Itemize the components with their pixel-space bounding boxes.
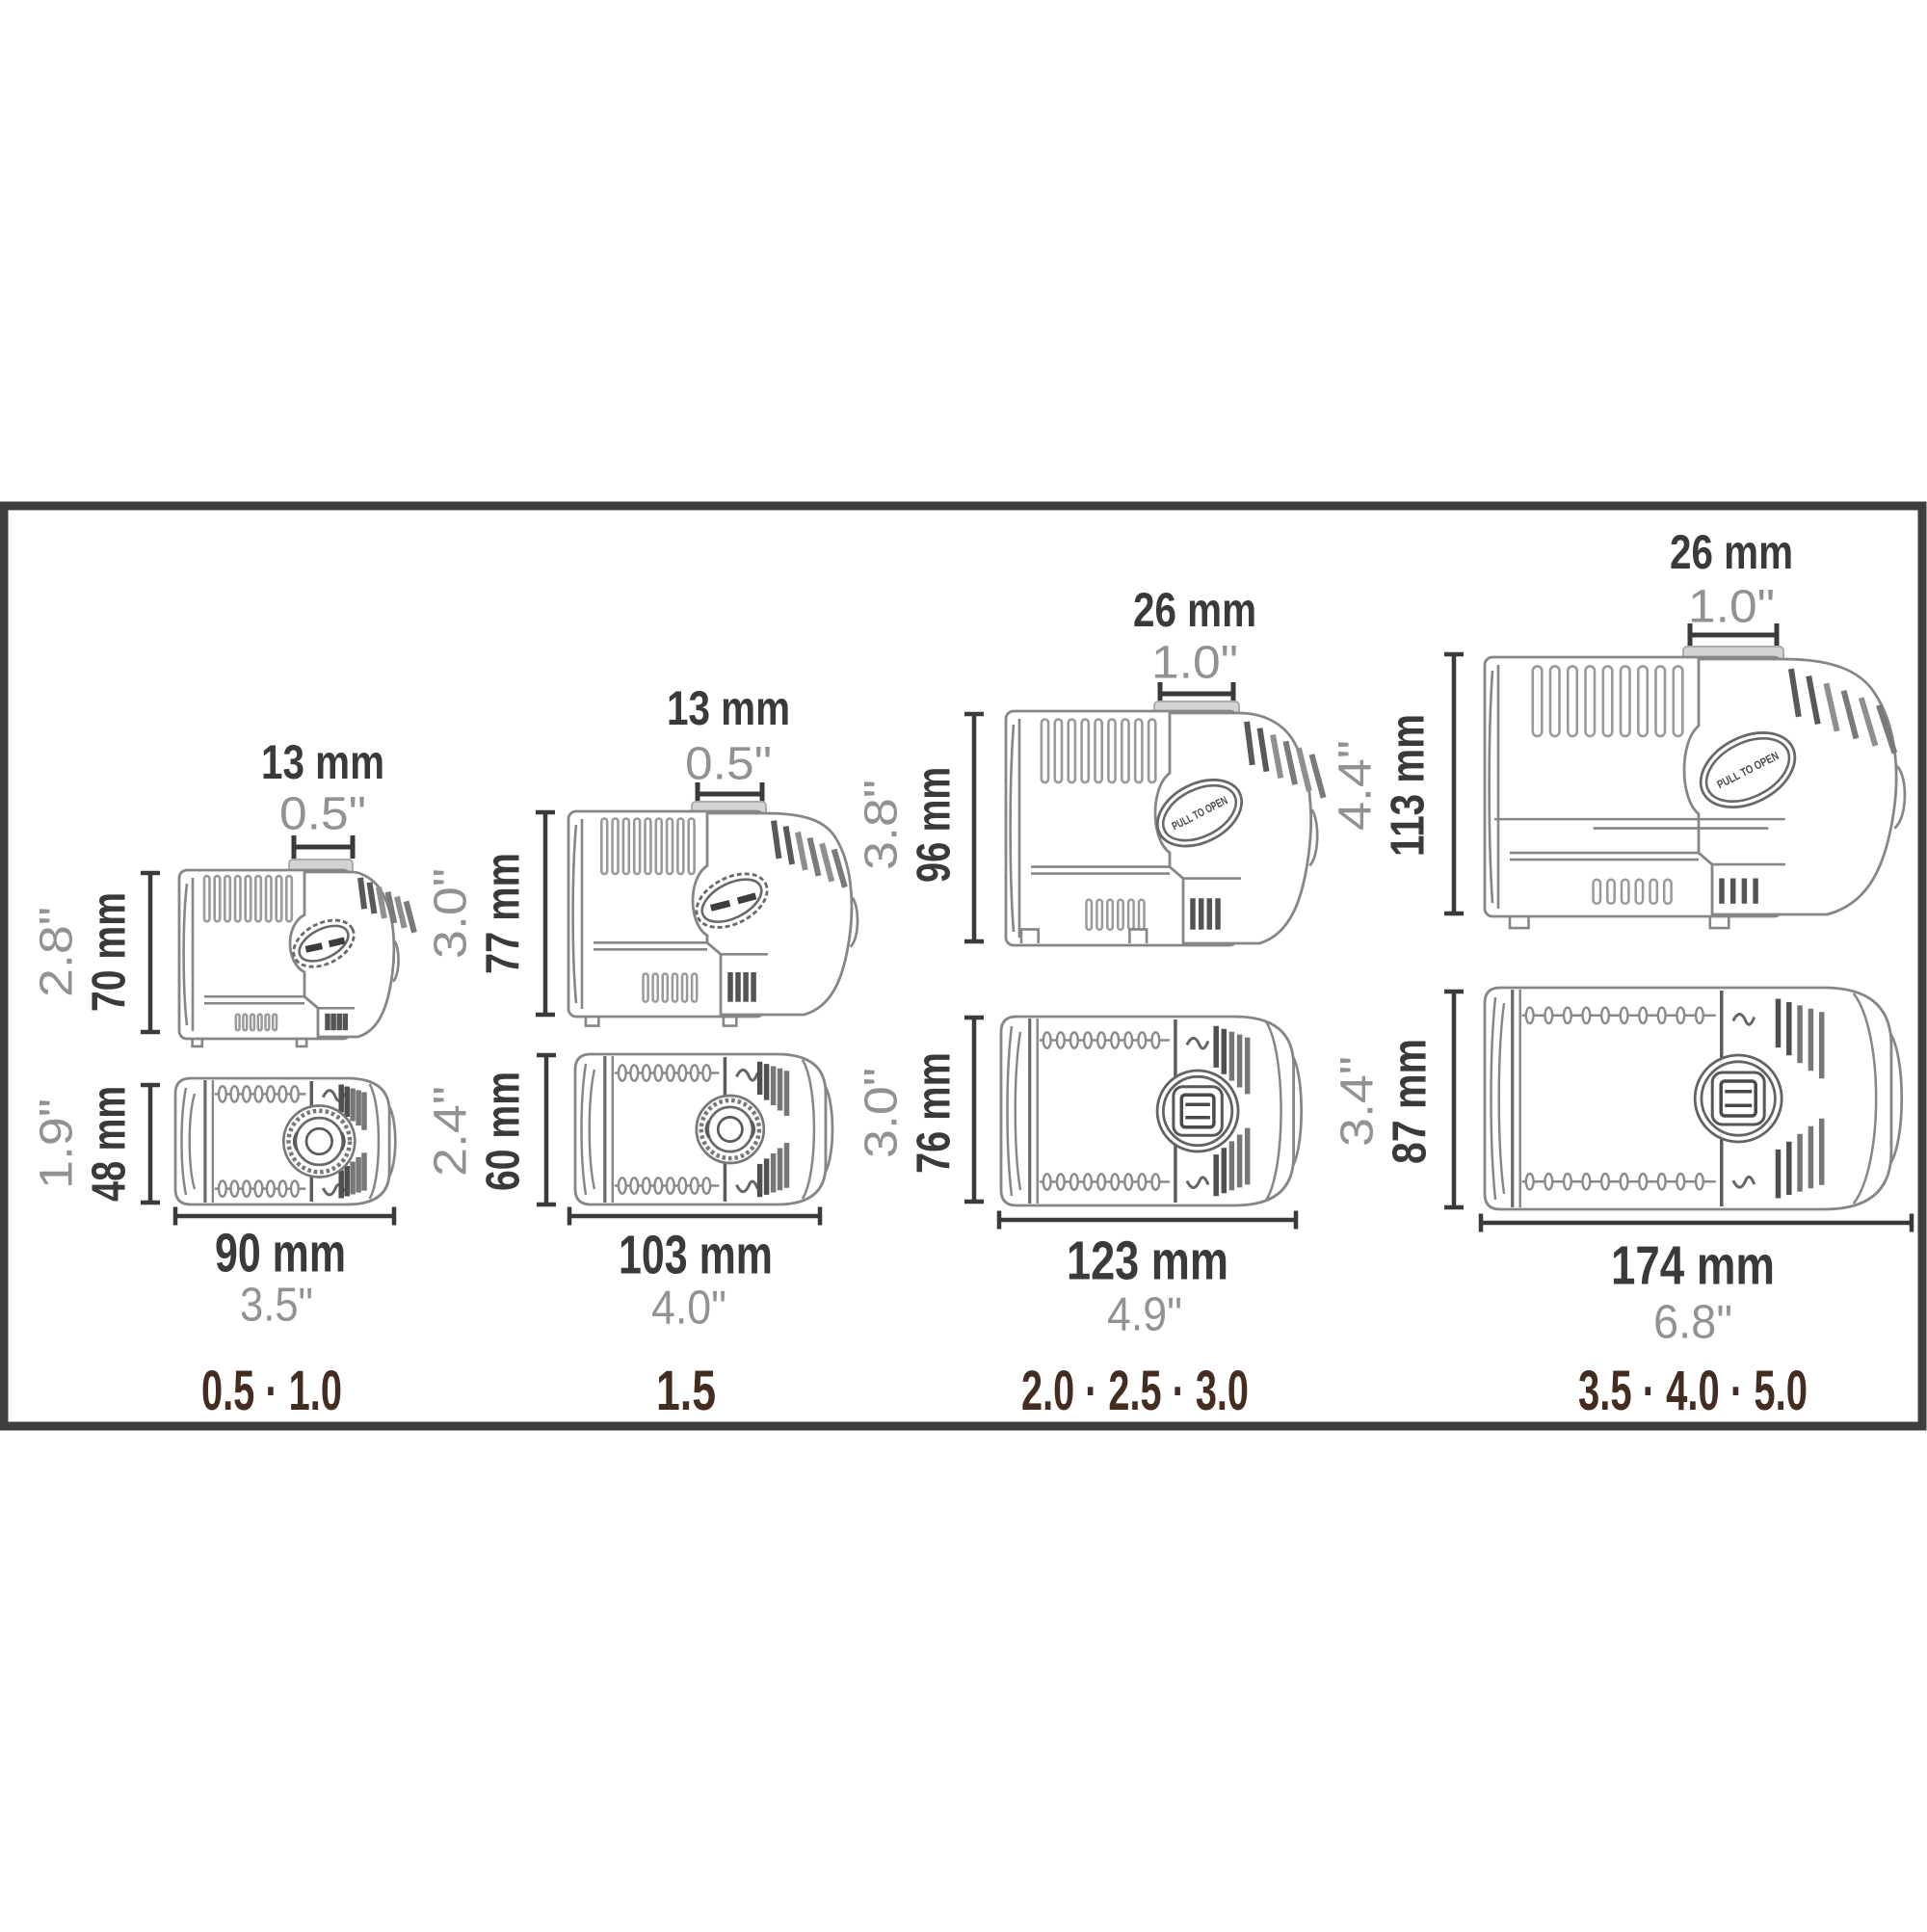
- svg-text:2.4": 2.4": [425, 1086, 476, 1177]
- svg-text:48 mm: 48 mm: [84, 1086, 136, 1202]
- svg-text:3.0": 3.0": [425, 868, 476, 959]
- svg-text:3.0": 3.0": [856, 1068, 907, 1158]
- svg-text:113 mm: 113 mm: [1383, 714, 1435, 857]
- svg-text:76 mm: 76 mm: [909, 1052, 961, 1174]
- svg-text:26 mm: 26 mm: [1670, 525, 1793, 579]
- svg-text:96 mm: 96 mm: [909, 767, 961, 883]
- svg-text:4.4": 4.4": [1330, 740, 1381, 831]
- svg-text:1.0": 1.0": [1688, 581, 1775, 632]
- svg-text:3.4": 3.4": [1332, 1056, 1383, 1147]
- svg-text:4.9": 4.9": [1107, 1289, 1182, 1341]
- svg-text:0.5": 0.5": [685, 738, 772, 789]
- svg-text:3.5 · 4.0 · 5.0: 3.5 · 4.0 · 5.0: [1578, 1360, 1808, 1422]
- svg-text:4.0": 4.0": [651, 1283, 726, 1335]
- svg-text:13 mm: 13 mm: [261, 735, 384, 789]
- svg-text:1.0": 1.0": [1151, 637, 1238, 688]
- svg-text:87 mm: 87 mm: [1385, 1039, 1437, 1164]
- svg-text:3.8": 3.8": [856, 780, 907, 870]
- svg-text:60 mm: 60 mm: [478, 1072, 530, 1191]
- svg-text:2.8": 2.8": [31, 907, 82, 997]
- svg-text:123 mm: 123 mm: [1067, 1231, 1228, 1292]
- svg-text:174 mm: 174 mm: [1611, 1235, 1775, 1297]
- svg-text:103 mm: 103 mm: [619, 1225, 773, 1286]
- svg-text:26 mm: 26 mm: [1133, 583, 1256, 637]
- svg-text:1.5: 1.5: [656, 1360, 716, 1422]
- svg-text:0.5": 0.5": [279, 788, 366, 839]
- svg-text:77 mm: 77 mm: [478, 853, 530, 974]
- svg-text:0.5 · 1.0: 0.5 · 1.0: [201, 1360, 342, 1422]
- svg-text:1.9": 1.9": [31, 1098, 82, 1189]
- svg-text:13 mm: 13 mm: [667, 681, 790, 735]
- svg-text:70 mm: 70 mm: [84, 892, 136, 1012]
- svg-text:2.0 · 2.5 · 3.0: 2.0 · 2.5 · 3.0: [1021, 1360, 1249, 1422]
- svg-text:6.8": 6.8": [1653, 1297, 1732, 1349]
- svg-text:90 mm: 90 mm: [215, 1223, 346, 1284]
- svg-text:3.5": 3.5": [240, 1280, 313, 1332]
